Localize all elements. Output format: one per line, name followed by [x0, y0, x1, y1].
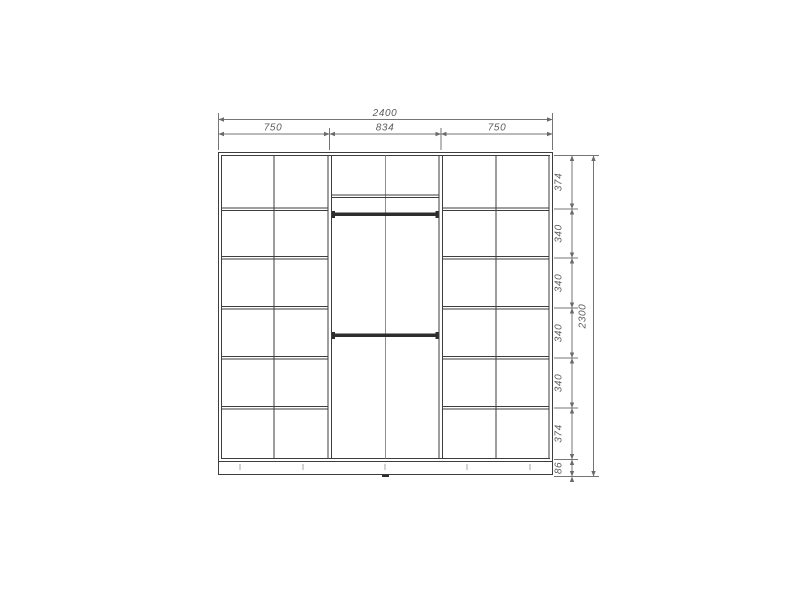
dim-label-row-3: 340 — [554, 274, 565, 293]
dim-label-height-overall: 2300 — [578, 304, 589, 330]
middle-section — [332, 156, 440, 459]
dim-label-section-middle: 834 — [376, 123, 395, 134]
dim-label-row-1: 374 — [554, 173, 565, 192]
base-center-mark — [382, 475, 389, 477]
dimension-top: 2400 750 834 750 — [219, 108, 553, 150]
dim-label-width-overall: 2400 — [372, 108, 398, 119]
wardrobe-elevation-drawing: 2400 750 834 750 — [0, 0, 800, 600]
dim-label-row-4: 340 — [554, 324, 565, 343]
plinth-base — [218, 464, 553, 477]
dim-label-row-6: 374 — [554, 424, 565, 443]
dim-label-section-right: 750 — [488, 123, 507, 134]
dim-label-base: 86 — [554, 462, 565, 474]
drawing-canvas: 2400 750 834 750 — [0, 0, 800, 600]
left-section-shelves — [222, 156, 329, 459]
dim-label-row-2: 340 — [554, 224, 565, 243]
dimension-right: 374 340 340 340 340 374 86 2300 — [554, 156, 600, 483]
right-section-shelves — [443, 156, 550, 459]
dim-label-row-5: 340 — [554, 374, 565, 393]
dim-label-section-left: 750 — [264, 123, 283, 134]
